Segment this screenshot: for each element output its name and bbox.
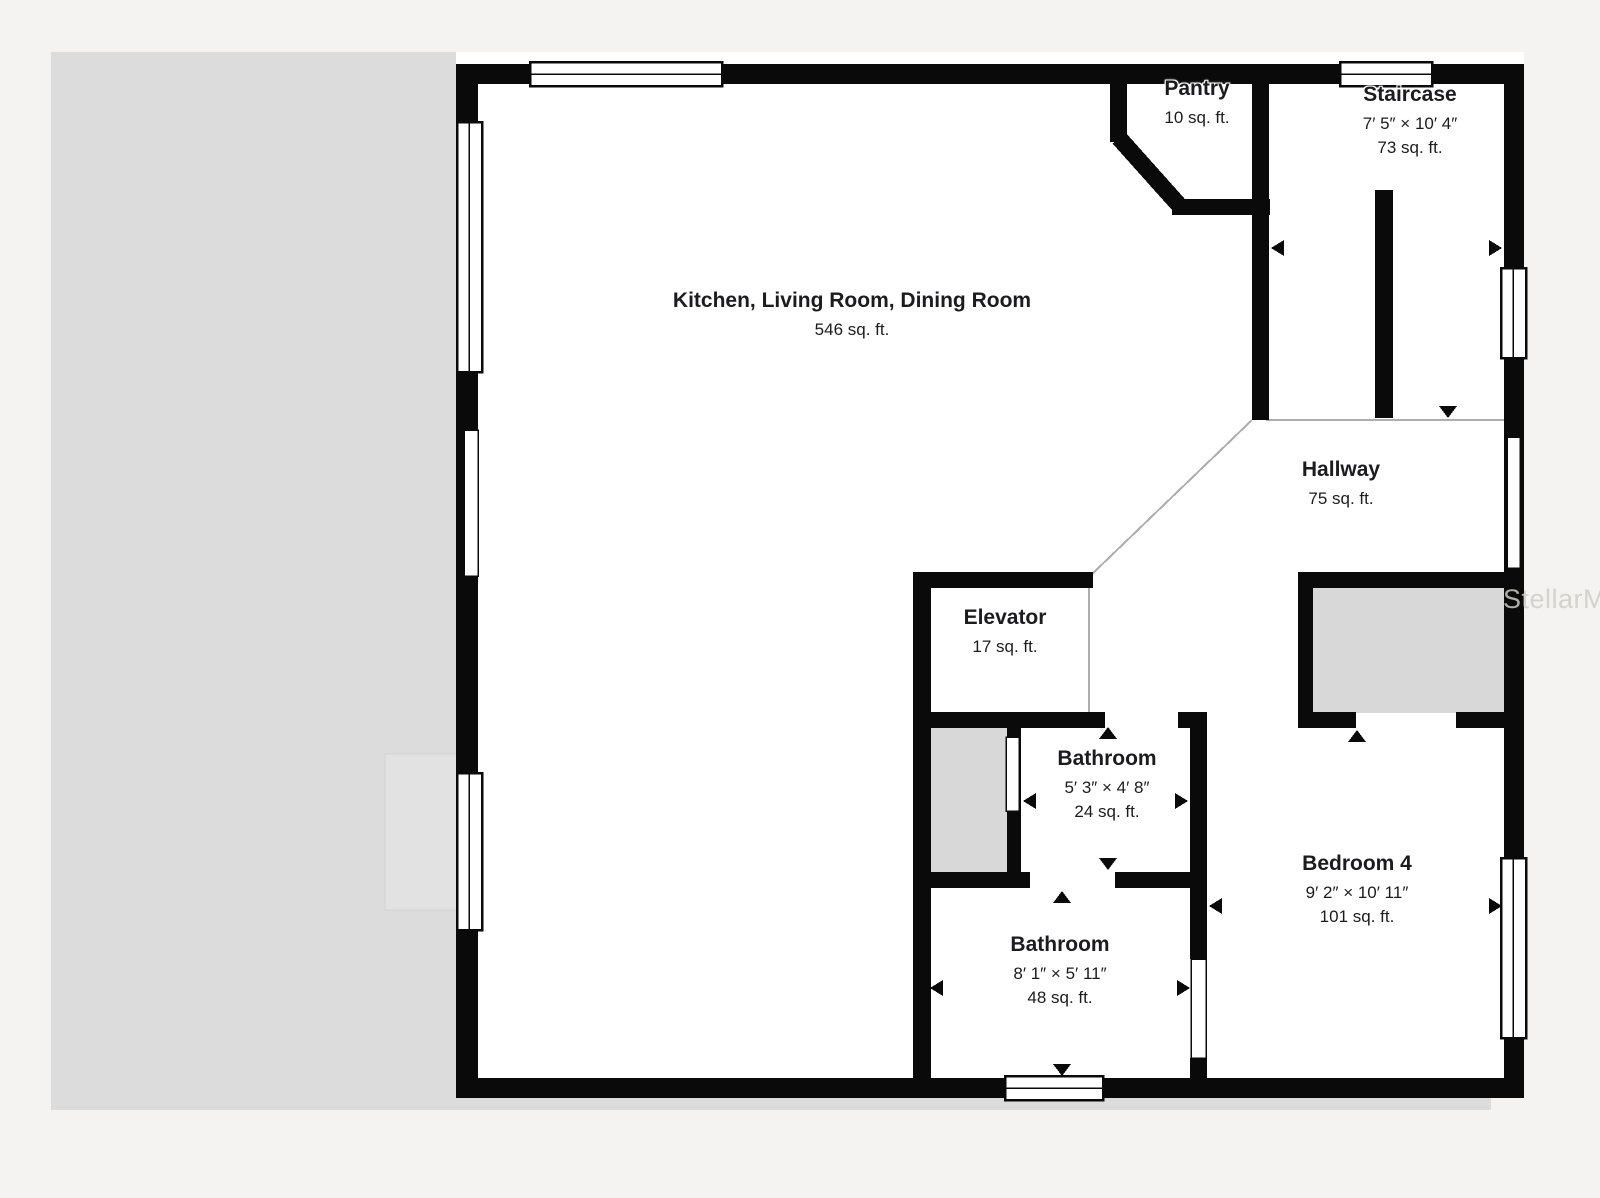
room-title: Kitchen, Living Room, Dining Room [673,290,1031,312]
room-title: Pantry [1164,78,1229,100]
hall-closet-fill [1313,588,1506,713]
room-area: 10 sq. ft. [1164,106,1229,129]
door-slab-icon [1006,737,1019,811]
wall-bedroom-top-left [1298,712,1356,728]
room-area: 75 sq. ft. [1302,487,1380,510]
room-label-kitchen-living-dining: Kitchen, Living Room, Dining Room 546 sq… [673,290,1031,341]
bath-closet-fill [930,728,1007,874]
wall-staircase-left [1252,84,1269,420]
floor-plan-svg [0,0,1600,1198]
exterior-patch [385,754,458,910]
wall-between-baths-left [913,872,1030,888]
room-title: Bathroom [1010,934,1109,956]
wall-kitchen-right-column [913,572,931,1098]
room-title: Elevator [964,607,1047,629]
wall-bedroom-top-right [1456,712,1524,728]
room-label-hallway: Hallway 75 sq. ft. [1302,459,1380,510]
room-dims: 5′ 3″ × 4′ 8″ [1057,776,1156,799]
room-dims: 8′ 1″ × 5′ 11″ [1010,962,1109,985]
floor-plan-page: Kitchen, Living Room, Dining Room 546 sq… [0,0,1600,1198]
wall-bedroom-left-upper [1190,712,1207,959]
room-label-bedroom-4: Bedroom 4 9′ 2″ × 10′ 11″ 101 sq. ft. [1302,853,1412,928]
room-label-staircase: Staircase 7′ 5″ × 10′ 4″ 73 sq. ft. [1363,84,1458,159]
door-slab-icon [1191,959,1206,1058]
room-title: Bedroom 4 [1302,853,1412,875]
wall-hall-closet-top [1298,572,1524,588]
wall-bedroom-left-lower [1190,1058,1207,1098]
door-slab-icon [1507,437,1520,568]
wall-hall-closet-left [1298,572,1313,727]
room-area: 73 sq. ft. [1363,136,1458,159]
room-area: 546 sq. ft. [673,318,1031,341]
room-dims: 7′ 5″ × 10′ 4″ [1363,112,1458,135]
wall-staircase-center [1375,190,1393,418]
wall-between-baths-right [1115,872,1207,888]
room-label-pantry: Pantry 10 sq. ft. [1164,78,1229,129]
room-area: 101 sq. ft. [1302,905,1412,928]
room-area: 48 sq. ft. [1010,986,1109,1009]
room-dims: 9′ 2″ × 10′ 11″ [1302,881,1412,904]
wall-bottom [456,1078,1524,1098]
room-area: 17 sq. ft. [964,635,1047,658]
room-title: Bathroom [1057,748,1156,770]
wall-elevator-top [913,572,1093,588]
room-title: Staircase [1363,84,1458,106]
room-label-bathroom-small: Bathroom 5′ 3″ × 4′ 8″ 24 sq. ft. [1057,748,1156,823]
room-label-elevator: Elevator 17 sq. ft. [964,607,1047,658]
room-label-bathroom-large: Bathroom 8′ 1″ × 5′ 11″ 48 sq. ft. [1010,934,1109,1009]
room-title: Hallway [1302,459,1380,481]
door-slab-icon [464,430,478,576]
watermark: StellarMLS [1503,584,1600,615]
room-area: 24 sq. ft. [1057,800,1156,823]
